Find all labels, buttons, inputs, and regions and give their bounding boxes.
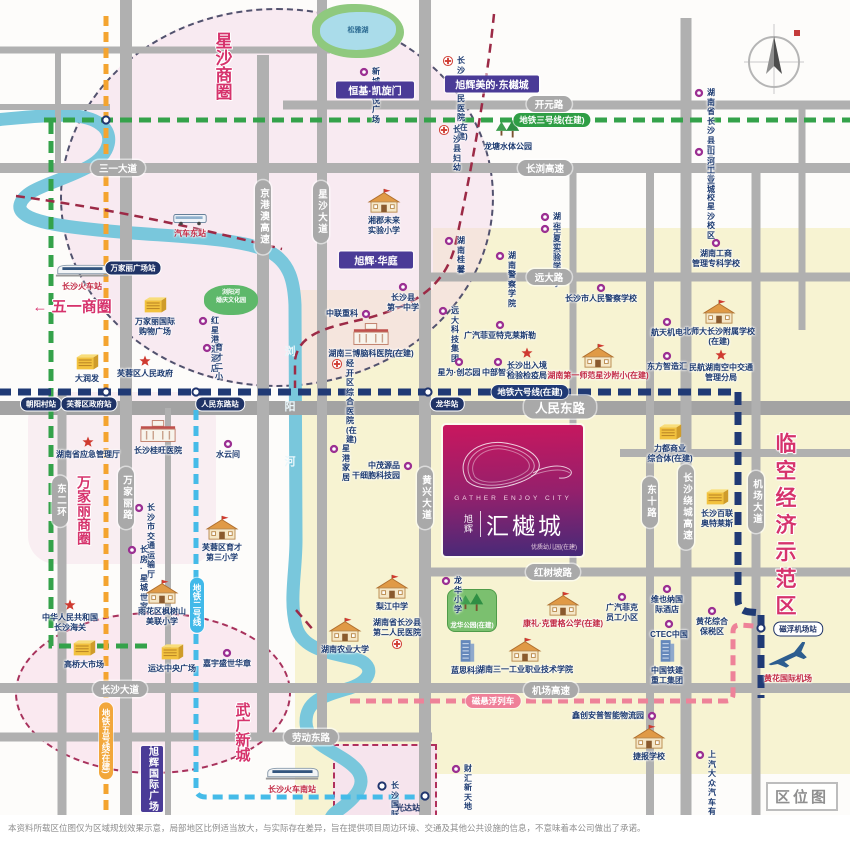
- road-label: 红树坡路: [526, 564, 580, 580]
- dot-icon: [496, 252, 505, 261]
- poi-label: 湖南省应急管理厅: [56, 450, 120, 460]
- dot-icon: [199, 317, 208, 326]
- road-label: 劳动东路: [284, 729, 338, 745]
- location-map: GATHER ENJOY CITY 旭辉 汇樾城 优质幼儿园(在建) 区位图 本…: [0, 0, 850, 843]
- poi-label: 嘉宇盛世华章: [203, 659, 251, 669]
- project-logo: GATHER ENJOY CITY 旭辉 汇樾城 优质幼儿园(在建): [443, 425, 583, 556]
- metro-station-label: 朝阳村站: [20, 397, 62, 412]
- dot-icon: [224, 440, 233, 449]
- dot-icon: [404, 462, 413, 471]
- dot-icon: [496, 321, 505, 330]
- metro-line-label: 地铁五号线(在建): [99, 702, 113, 779]
- park-label: 松雅湖: [312, 25, 404, 35]
- gov-icon: [352, 322, 390, 347]
- poi-label: 运达中央广场: [148, 664, 196, 674]
- poi-label: 长沙市交通运输厅: [147, 503, 155, 579]
- poi-label: 湖南第一师范星沙附小(在建): [547, 371, 648, 381]
- star-icon: [64, 599, 76, 611]
- poi-label: 高桥大市场: [64, 660, 104, 670]
- dot-icon: [128, 546, 137, 555]
- metro-line-3: [44, 120, 850, 646]
- dot-icon: [695, 148, 704, 157]
- poi-label: 长沙出入境 检验检疫局: [507, 361, 547, 380]
- poi-label: 水云间: [216, 450, 240, 460]
- poi-label: 黄花国际机场: [764, 674, 812, 684]
- cross-icon: [443, 56, 454, 67]
- poi-label: 龙华小学: [454, 576, 462, 614]
- poi-label: 湖南警察学院: [508, 251, 516, 308]
- dot-icon: [445, 237, 454, 246]
- cross-icon: [439, 125, 450, 136]
- poi-label: 长沙火车南站: [268, 785, 316, 795]
- metro-line-label: 磁悬浮列车: [466, 694, 521, 708]
- gov-icon: [139, 419, 177, 444]
- road-label: 三一大道: [91, 160, 145, 176]
- dot-icon: [541, 225, 550, 234]
- map-lines-layer: [0, 0, 850, 843]
- train-icon: [264, 765, 320, 782]
- metro-station-label: 龙华站: [430, 397, 465, 412]
- poi-label: 星港家居: [342, 444, 350, 482]
- metro-station-label: 磁浮机场站: [773, 622, 823, 637]
- poi-label: 鑫创安普智能物流园: [572, 711, 644, 721]
- road-label: 开元路: [527, 96, 572, 112]
- school-icon: [581, 343, 615, 369]
- road-label: 远大路: [527, 269, 572, 285]
- poi-label: 万家丽国际 购物广场: [135, 317, 175, 336]
- logo-ribbon-icon: [443, 429, 583, 499]
- disclaimer-text: 本资料所载区位图仅为区域规划效果示意，局部地区比例适当放大，与实际存在差异，旨在…: [8, 822, 646, 834]
- poi-label: 雨花区枫树山 美联小学: [138, 607, 186, 626]
- park-label: 浏阳河 婚庆文化园: [204, 289, 258, 305]
- road-label: 机场大道: [748, 471, 764, 533]
- dot-icon: [712, 239, 721, 248]
- logo-project-name: 汇樾城: [486, 507, 564, 541]
- cross-icon: [332, 359, 343, 370]
- road-label: 长沙大道: [93, 681, 147, 697]
- road-label: 黄兴大道: [417, 467, 433, 529]
- dot-icon: [648, 712, 657, 721]
- bus-icon: [172, 212, 208, 227]
- dot-icon: [663, 352, 672, 361]
- metro-line-label: 地铁六号线(在建): [491, 385, 568, 399]
- poi-label: 捷报学校: [633, 752, 665, 762]
- dot-icon: [203, 344, 212, 353]
- ring-icon: [101, 115, 111, 125]
- mall-icon: [141, 292, 169, 315]
- dot-icon: [663, 585, 672, 594]
- dot-icon: [618, 593, 627, 602]
- mall-icon: [73, 349, 101, 372]
- poi-label: 中茂源品 干细胞科技园: [352, 461, 400, 480]
- mall-icon: [656, 419, 684, 442]
- poi-label: 星为·创芯园: [438, 368, 481, 378]
- office-icon: [658, 637, 676, 664]
- poi-label: 维也纳国 际酒店: [651, 595, 683, 614]
- ring-icon: [101, 387, 111, 397]
- dot-icon: [223, 649, 232, 658]
- star-icon: [521, 347, 533, 359]
- poi-label: 财汇新天地: [464, 764, 472, 812]
- school-icon: [205, 515, 239, 541]
- logo-kindergarten-tag: 优质幼儿园(在建): [531, 542, 577, 551]
- dot-icon: [663, 318, 672, 327]
- dot-icon: [494, 358, 503, 367]
- office-icon: [458, 637, 476, 664]
- project-box: 旭辉国际广场: [141, 746, 163, 812]
- metro-line-label: 地铁三号线(在建): [513, 113, 590, 127]
- metro-station-label: 万家丽广场站: [105, 261, 162, 276]
- dot-icon: [442, 577, 451, 586]
- songya-lake: 松雅湖: [312, 4, 404, 58]
- poi-label: 中联重科: [326, 309, 358, 319]
- district-label: 万家丽商圈: [74, 475, 94, 545]
- road-label: 京港澳高速: [255, 180, 271, 254]
- dot-icon: [696, 751, 705, 760]
- poi-label: 湖南工商 管理专科学校: [692, 249, 740, 268]
- poi-label: 湖南三一工业职业技术学院: [477, 665, 573, 675]
- plane-icon: [765, 642, 811, 670]
- metro-line-label: 地铁二号线: [190, 578, 204, 633]
- poi-label: 湖南省长沙县 第二人民医院: [373, 618, 421, 637]
- poi-label: 湘郡未来 实验小学: [368, 216, 400, 235]
- poi-label: 广汽菲亚特克莱斯勒: [464, 331, 536, 341]
- school-icon: [508, 637, 542, 663]
- dot-icon: [695, 89, 704, 98]
- dot-icon: [541, 213, 550, 222]
- poi-label: 大润发: [75, 374, 99, 384]
- dot-icon: [439, 307, 448, 316]
- poi-label: 长沙县妇幼: [453, 125, 461, 173]
- river-name-label: 浏阳河: [281, 346, 297, 511]
- metro-station-label: 光达站: [391, 802, 425, 815]
- school-icon: [367, 188, 401, 214]
- poi-label: 湖南桂馨: [457, 236, 465, 274]
- poi-label: 湖南农业大学: [321, 645, 369, 655]
- wedding-park: 浏阳河 婚庆文化园: [204, 285, 258, 315]
- poi-label: 康礼·克雷格公学(在建): [523, 619, 603, 629]
- dot-icon: [360, 68, 369, 77]
- poi-label: 民航湖南空中交通 管理分局: [689, 363, 753, 382]
- poi-label: 山河工业城: [707, 147, 715, 195]
- road-label: 东二环: [52, 476, 68, 527]
- mall-icon: [158, 639, 186, 662]
- school-icon: [375, 574, 409, 600]
- poi-label: 力都商业 综合体(在建): [647, 444, 692, 463]
- poi-label: 长沙百联 奥特莱斯: [701, 509, 733, 528]
- dot-icon: [399, 283, 408, 292]
- ring-icon: [756, 623, 766, 633]
- disclaimer-bar: 本资料所载区位图仅为区域规划效果示意，局部地区比例适当放大，与实际存在差异，旨在…: [0, 815, 850, 843]
- poi-label: 东方智造汇: [647, 362, 687, 372]
- poi-label: 中国铁建 重工集团: [651, 666, 683, 685]
- poi-label: 长沙县 第一中学: [387, 293, 419, 312]
- road-label: 长沙绕城高速: [678, 465, 694, 550]
- logo-slogan: GATHER ENJOY CITY: [443, 495, 583, 502]
- park-label: 龙华公园(在建): [448, 619, 496, 629]
- poi-label: 经开区综合医院(在建): [346, 359, 357, 445]
- poi-label: 远大科技集团: [451, 306, 459, 363]
- dot-icon: [665, 620, 674, 629]
- poi-label: 芙蓉区育才 第三小学: [202, 543, 242, 562]
- poi-label: 龙塘水体公园: [484, 142, 532, 152]
- metro-station-label: 芙蓉区政府站: [61, 397, 118, 412]
- logo-divider: [480, 511, 481, 537]
- dot-icon: [597, 284, 606, 293]
- poi-label: 航天机电: [651, 328, 683, 338]
- ring-icon: [191, 387, 201, 397]
- poi-label: 广汽菲克 员工小区: [606, 603, 638, 622]
- dot-icon: [330, 445, 339, 454]
- road-label: 万家丽路: [118, 467, 134, 529]
- dot-icon: [455, 358, 464, 367]
- dot-icon: [708, 607, 717, 616]
- school-icon: [546, 591, 580, 617]
- train-icon: [54, 262, 110, 279]
- poi-label: 梨江中学: [376, 602, 408, 612]
- poi-label: 芙蓉区人民政府: [117, 369, 173, 379]
- poi-label: 黄花综合 保税区: [696, 617, 728, 636]
- cross-icon: [392, 639, 403, 650]
- district-label: 武广新城: [232, 702, 253, 762]
- school-icon: [145, 579, 179, 605]
- district-label: 星沙商圈: [210, 32, 235, 100]
- project-box: 旭辉·华庭: [339, 252, 413, 269]
- ring-icon: [423, 387, 433, 397]
- ring-icon: [420, 791, 430, 801]
- school-icon: [328, 617, 362, 643]
- road-label: 东十路: [642, 477, 658, 528]
- project-box: 恒基·凯旋门: [336, 82, 414, 99]
- compass-icon: [742, 22, 806, 94]
- poi-label: 中华人民共和国 长沙海关: [42, 613, 98, 632]
- project-box: 旭辉美的·东樾城: [445, 76, 539, 93]
- poi-label: 长沙桂旺医院: [134, 446, 182, 456]
- poi-label: 湖南三博脑科医院(在建): [328, 349, 413, 359]
- mall-icon: [70, 635, 98, 658]
- road-label: 长浏高速: [518, 160, 572, 176]
- corner-map-title: 区位图: [766, 782, 838, 811]
- school-icon: [632, 724, 666, 750]
- poi-label: 北师大长沙附属学校 (在建): [683, 327, 755, 346]
- mall-icon: [703, 484, 731, 507]
- poi-label: 长沙火车站: [62, 282, 102, 292]
- star-icon: [139, 355, 151, 367]
- park-trees-icon: [458, 593, 486, 614]
- school-icon: [702, 299, 736, 325]
- poi-label: 汽车东站: [174, 229, 206, 239]
- star-icon: [715, 349, 727, 361]
- star-icon: [82, 436, 94, 448]
- district-label: 临空经济示范区: [769, 433, 799, 622]
- ring-icon: [377, 781, 387, 791]
- road-label: 星沙大道: [313, 181, 329, 243]
- metro-station-label: 人民东路站: [195, 397, 245, 412]
- dot-icon: [362, 310, 371, 319]
- poi-label: 长沙市人民警察学校: [565, 294, 637, 304]
- poi-label: 育才二小: [215, 343, 223, 381]
- dot-icon: [452, 765, 461, 774]
- logo-brand: 旭辉: [462, 514, 475, 534]
- district-label: ← 五一商圈: [32, 296, 111, 317]
- dot-icon: [135, 504, 144, 513]
- road-label: 机场高速: [524, 682, 578, 698]
